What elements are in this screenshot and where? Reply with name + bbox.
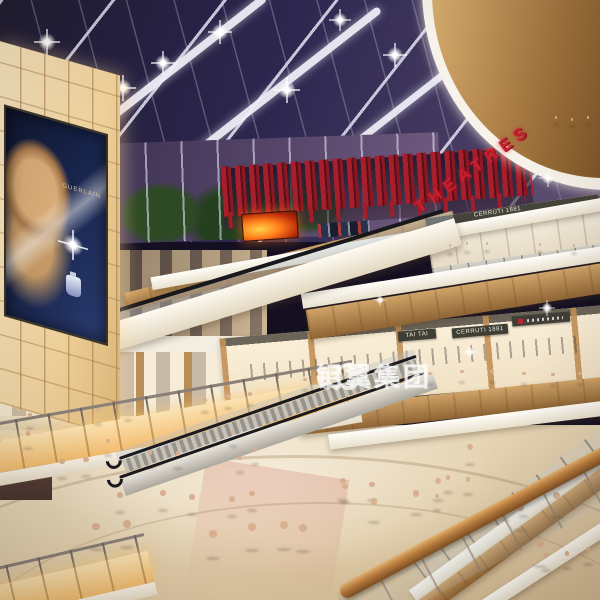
light-sparkle xyxy=(274,77,300,103)
perfume-billboard: GUERLAIN xyxy=(4,104,108,346)
perfume-bottle xyxy=(66,274,81,298)
light-sparkle xyxy=(151,51,175,75)
watermark-text: 铝翼集团 xyxy=(316,357,432,394)
light-sparkle xyxy=(329,9,351,31)
light-sparkle xyxy=(208,20,232,44)
led-screen-fire-ad xyxy=(241,210,299,242)
illegible-sign-text xyxy=(527,316,563,322)
light-sparkle xyxy=(383,43,407,67)
billboard-brand-text: GUERLAIN xyxy=(62,183,101,200)
developer-watermark: 铝翼集团 xyxy=(316,354,546,396)
mall-atrium-rendering: THEATRES CERRUTI 1881 GUERLAIN TAI TAI C… xyxy=(0,0,600,600)
glowing-panel-wall: GUERLAIN xyxy=(0,40,120,438)
billboard-sparkle xyxy=(58,226,88,265)
red-logo-mark xyxy=(518,319,523,324)
